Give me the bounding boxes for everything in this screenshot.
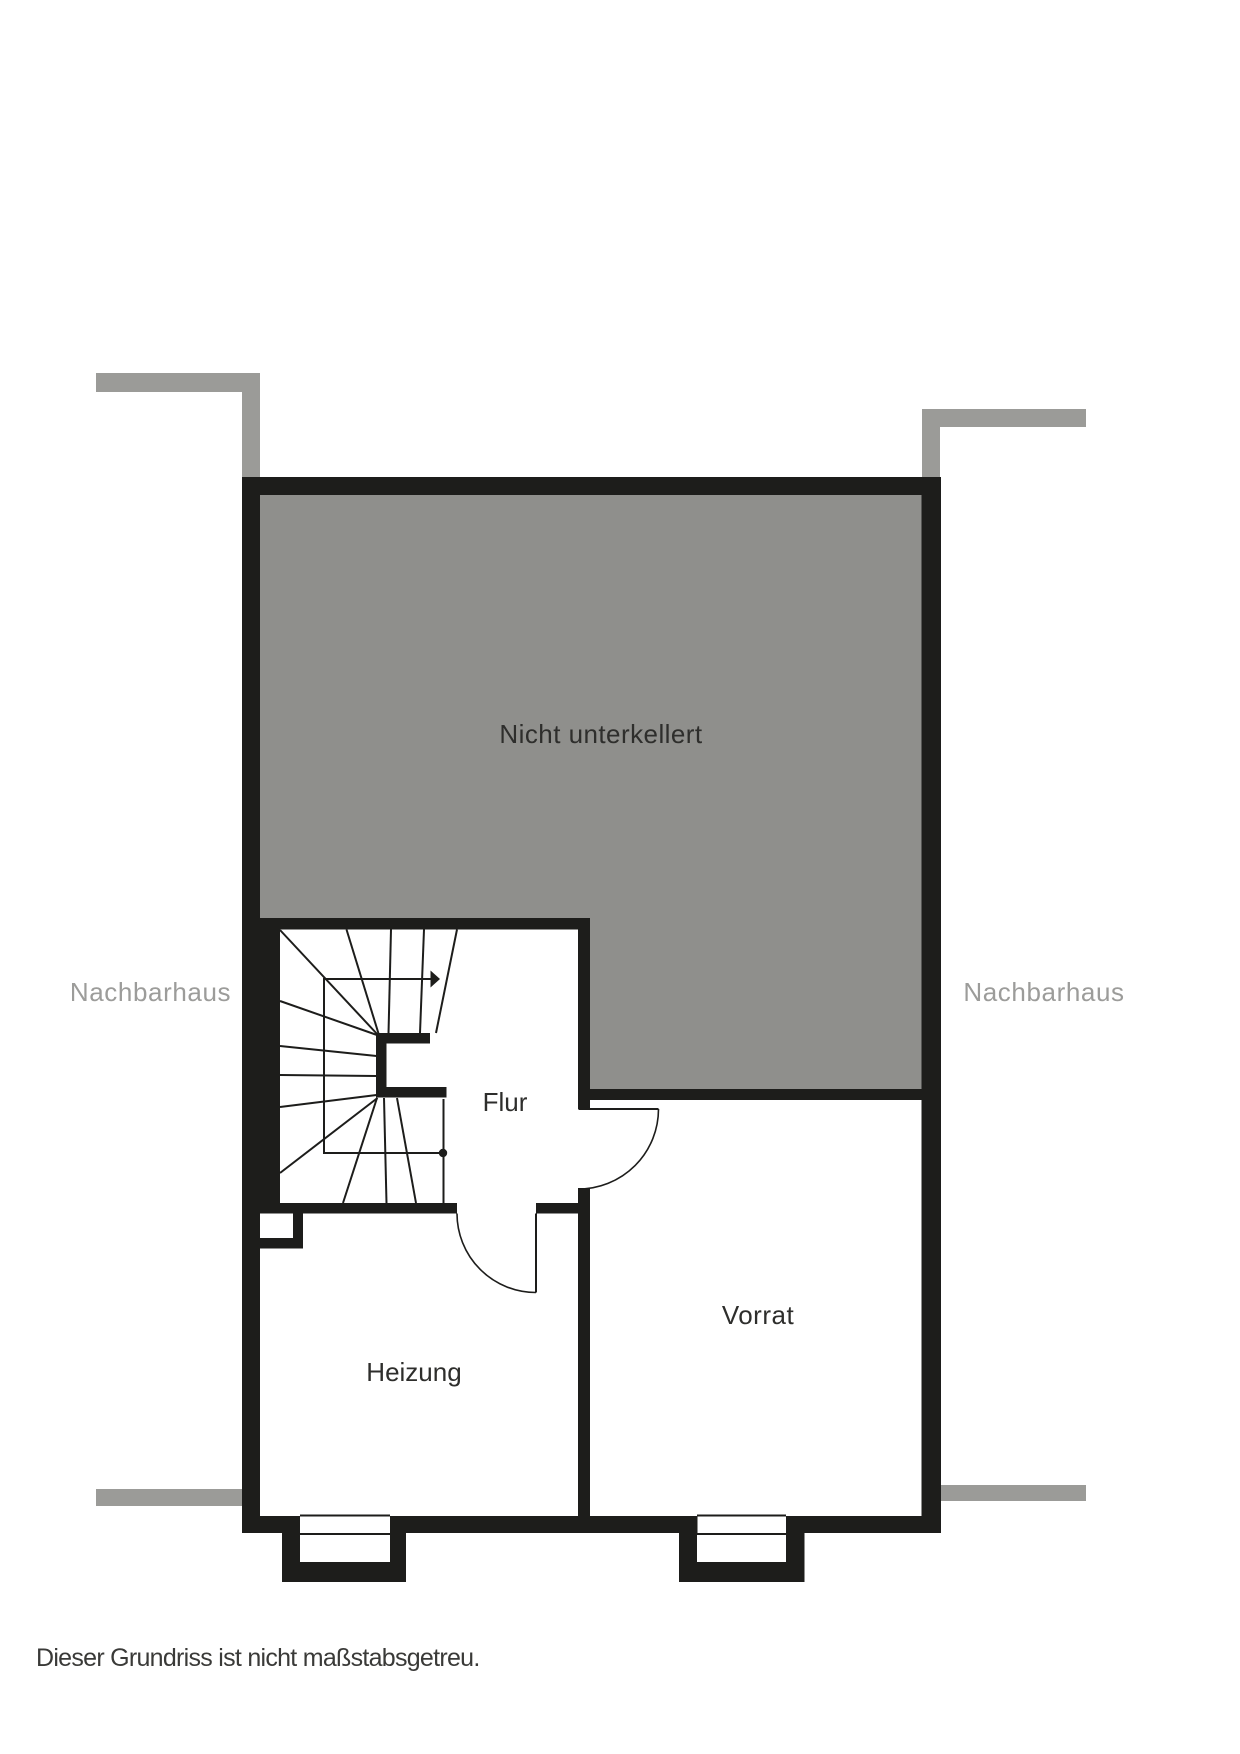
svg-text:Nachbarhaus: Nachbarhaus bbox=[70, 977, 231, 1007]
svg-text:Dieser Grundriss ist nicht maß: Dieser Grundriss ist nicht maßstabsgetre… bbox=[36, 1644, 480, 1672]
svg-text:Nachbarhaus: Nachbarhaus bbox=[963, 977, 1124, 1007]
svg-text:Nicht unterkellert: Nicht unterkellert bbox=[499, 719, 703, 749]
svg-text:Heizung: Heizung bbox=[366, 1357, 461, 1387]
svg-text:Flur: Flur bbox=[483, 1087, 528, 1117]
svg-text:Vorrat: Vorrat bbox=[722, 1300, 795, 1330]
